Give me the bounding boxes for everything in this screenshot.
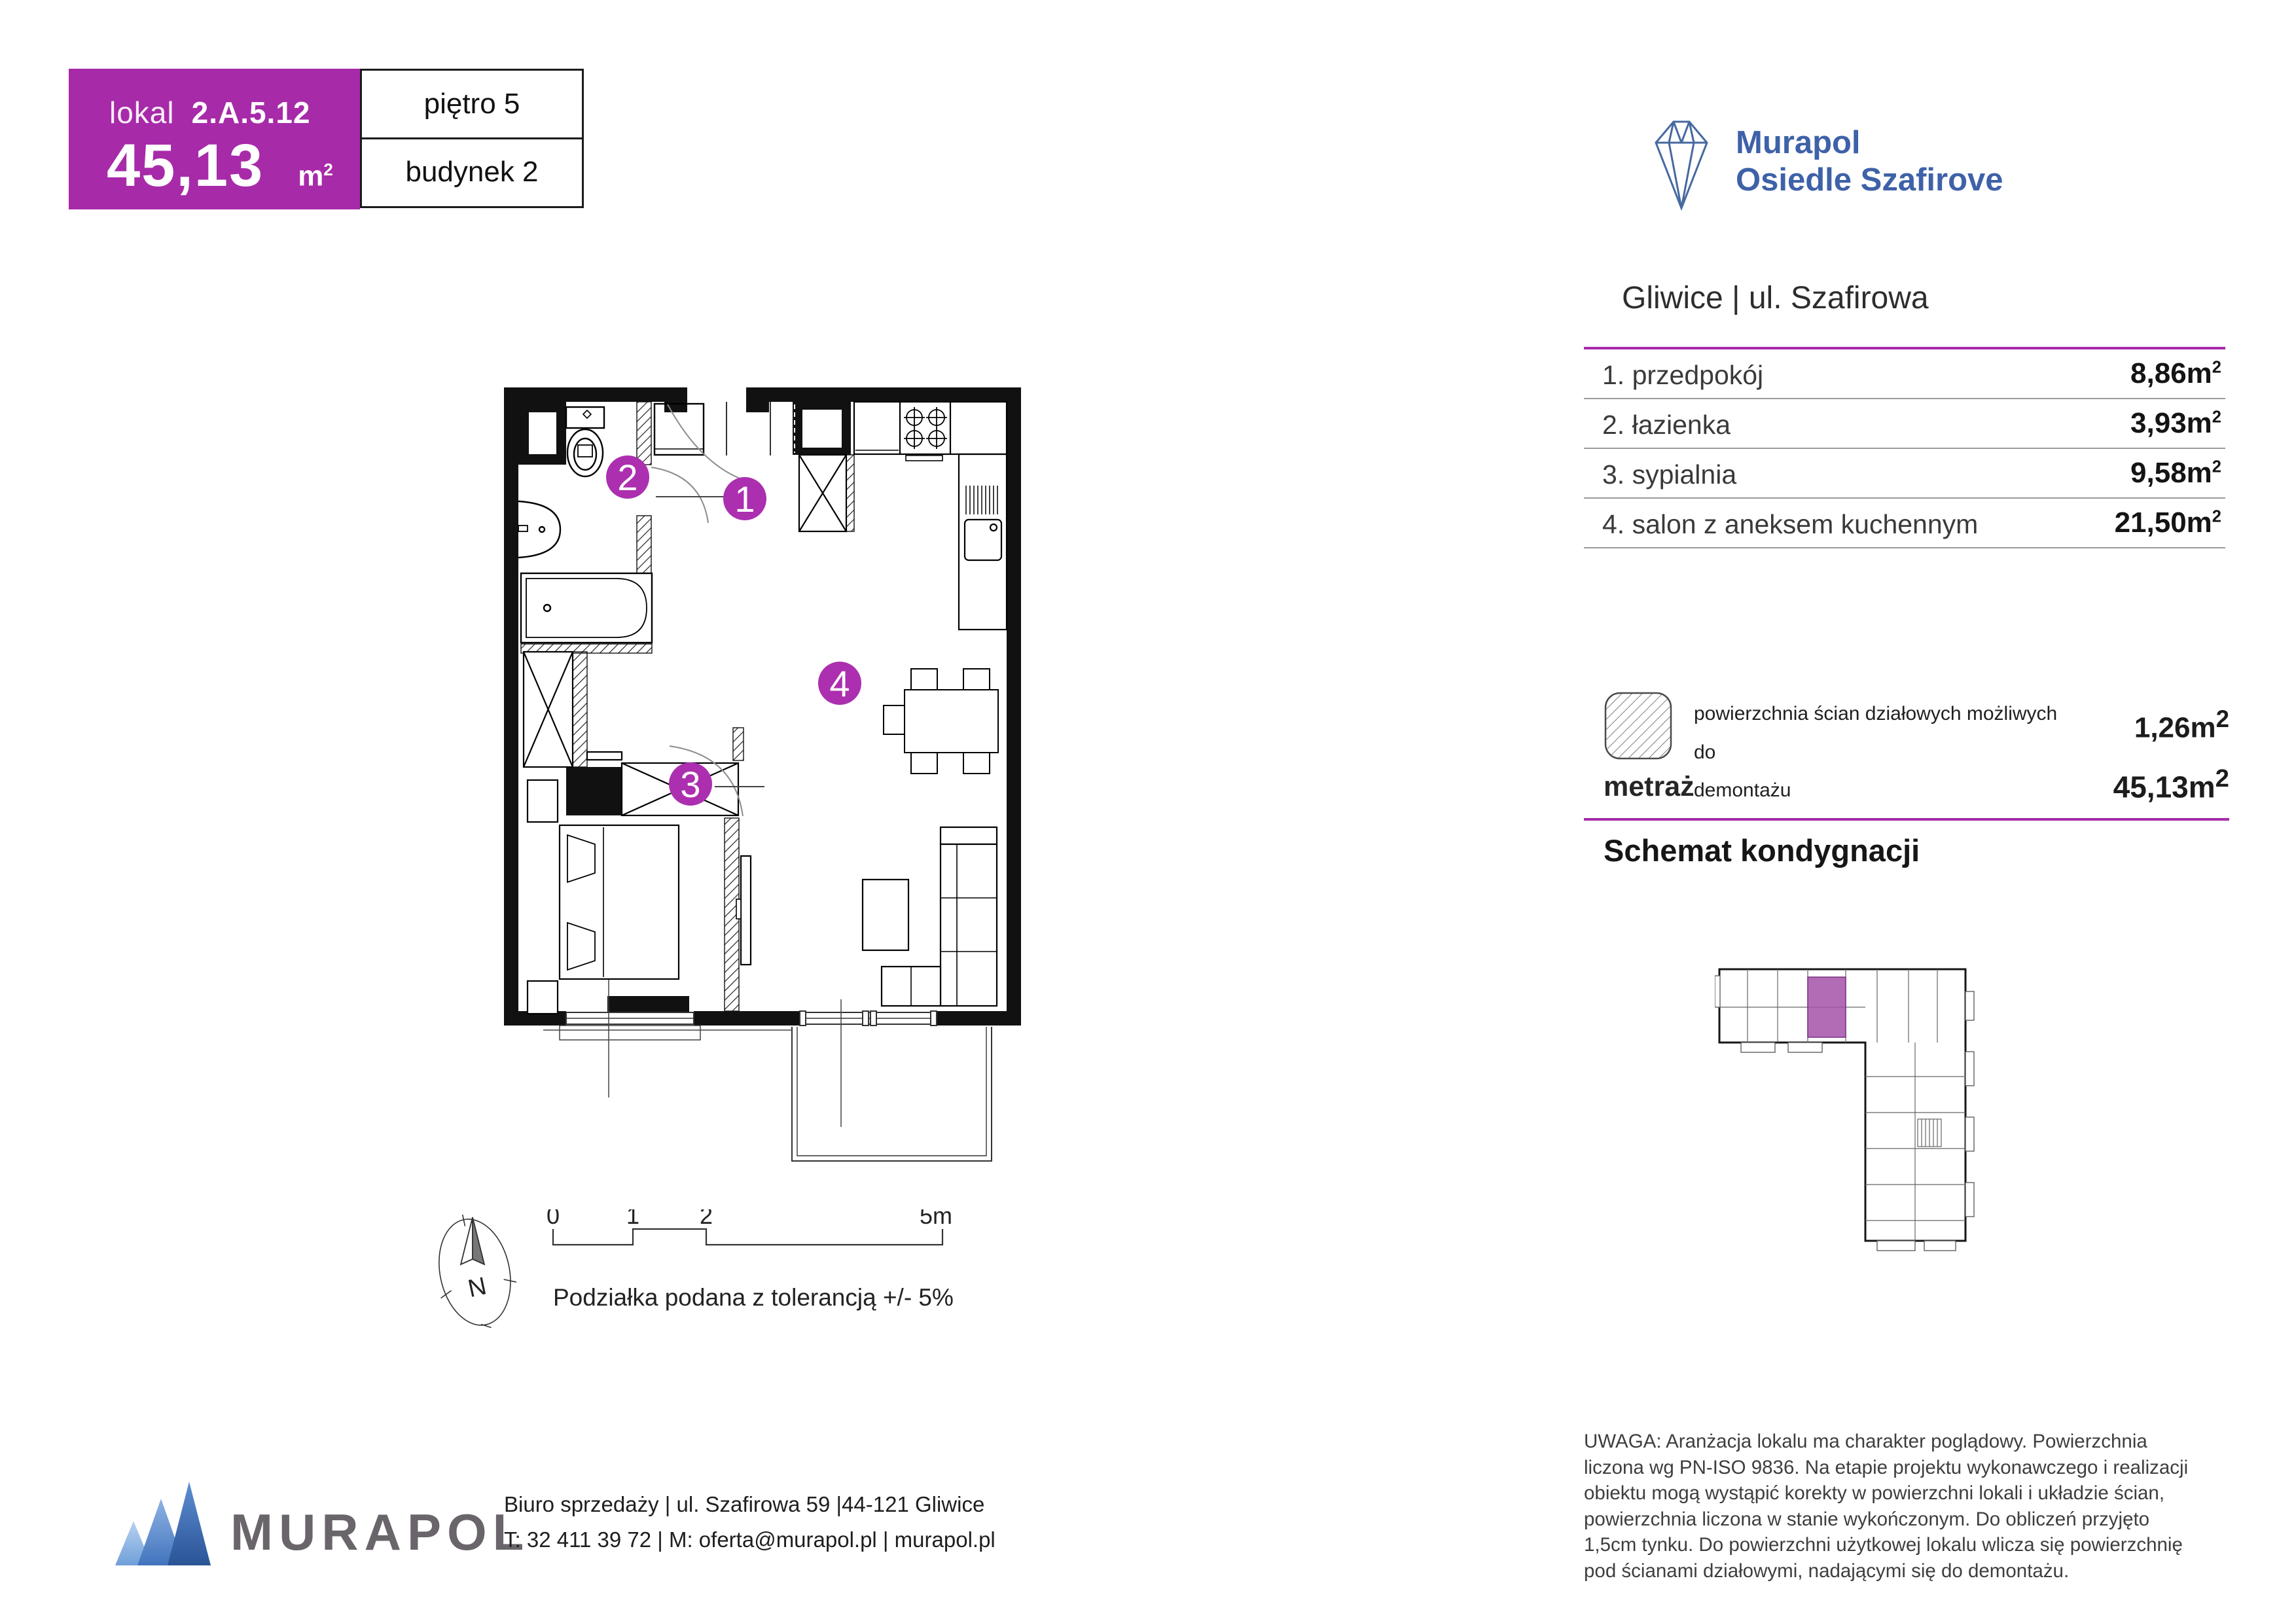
table-row: 2. łazienka 3,93m2 [1584,399,2225,449]
project-location: Gliwice | ul. Szafirowa [1622,280,1929,316]
scale-5m: 5m [920,1209,952,1229]
unit-area-unit: m2 [298,160,333,193]
sofa-armrest [941,827,997,844]
murapol-diamond-icon [1644,115,1719,213]
leader-lines [656,497,764,787]
kitchen [854,402,1007,630]
unit-area-value: 45,13 [107,132,264,200]
kitchen-sink [966,486,997,514]
shaft [802,410,842,448]
marker-1: 1 [734,478,755,520]
disclaimer-text: UWAGA: Aranżacja lokalu ma charakter pog… [1584,1429,2191,1584]
balcony [792,1027,992,1161]
room-label: 3. sypialnia [1602,459,1736,490]
floor-label: piętro 5 [424,88,520,120]
marker-4: 4 [829,663,850,704]
table-row: 4. salon z aneksem kuchennym 21,50m2 [1584,499,2225,548]
floor-box: piętro 5 [360,69,584,139]
apartment-floor-plan: 1 2 3 4 [504,387,1021,1173]
footer-phone-email: T: 32 411 39 72 | M: oferta@murapol.pl |… [504,1522,996,1558]
murapol-logo-icon [110,1474,224,1572]
toilet-cistern [566,407,604,428]
sofa [941,844,997,1006]
room-label: 1. przedpokój [1602,360,1763,391]
unit-badge: lokal2.A.5.12 45,13 m2 [69,69,360,209]
tv [741,856,751,965]
scale-1: 1 [626,1209,639,1229]
stove [904,407,947,449]
brand-name-line2: Osiedle Szafirove [1736,162,2003,199]
building-label: budynek 2 [405,156,538,188]
wardrobes [524,455,846,815]
schemat-title: Schemat kondygnacji [1604,832,1920,868]
unit-label: lokal [109,96,175,130]
room-value: 9,58m2 [2130,457,2221,490]
footer-brand-text: MURAPOL [230,1503,529,1562]
north-label: N [465,1272,489,1303]
room-value: 21,50m2 [2115,507,2221,539]
rooms-table: 1. przedpokój 8,86m2 2. łazienka 3,93m2 … [1584,347,2225,548]
unit-area-line: 45,13 m2 [107,132,333,200]
footer-address: Biuro sprzedaży | ul. Szafirowa 59 |44-1… [504,1487,996,1522]
purple-divider [1584,818,2229,821]
living-room-furniture [863,827,997,1006]
footer-contact: Biuro sprzedaży | ul. Szafirowa 59 |44-1… [504,1487,996,1558]
room-label: 2. łazienka [1602,410,1731,440]
door-arcs [651,404,745,816]
highlighted-unit [1808,977,1846,1037]
section-lines [543,980,841,1127]
scale-caption: Podziałka podana z tolerancją +/- 5% [553,1284,954,1311]
marker-3: 3 [680,764,700,805]
room-value: 3,93m2 [2130,407,2221,440]
unit-number: 2.A.5.12 [192,96,311,130]
table-row: 1. przedpokój 8,86m2 [1584,349,2225,399]
floor-schema-plan [1715,952,2081,1286]
room-label: 4. salon z aneksem kuchennym [1602,509,1978,540]
dining-set [884,669,998,774]
room-value: 8,86m2 [2130,357,2221,390]
metraz-value: 45,13m2 [1584,764,2229,804]
coffee-table [863,880,908,950]
wall-niche [529,412,556,454]
table-row: 3. sypialnia 9,58m2 [1584,449,2225,499]
bathtub [521,573,652,643]
legend-value: 1,26m2 [1584,705,2229,745]
scale-0: 0 [547,1209,560,1229]
scale-2: 2 [700,1209,713,1229]
nightstand [528,780,558,822]
building-box: budynek 2 [360,137,584,208]
brand-name: Murapol Osiedle Szafirove [1736,124,2003,199]
scale-bar: 0 1 2 5m [543,1209,962,1262]
brand-name-line1: Murapol [1736,124,2003,162]
apartment-card-page: lokal2.A.5.12 45,13 m2 piętro 5 budynek … [0,0,2296,1623]
north-arrow: N [419,1199,530,1340]
unit-id-line: lokal2.A.5.12 [109,95,311,130]
marker-2: 2 [617,457,637,498]
nightstand [528,981,558,1014]
